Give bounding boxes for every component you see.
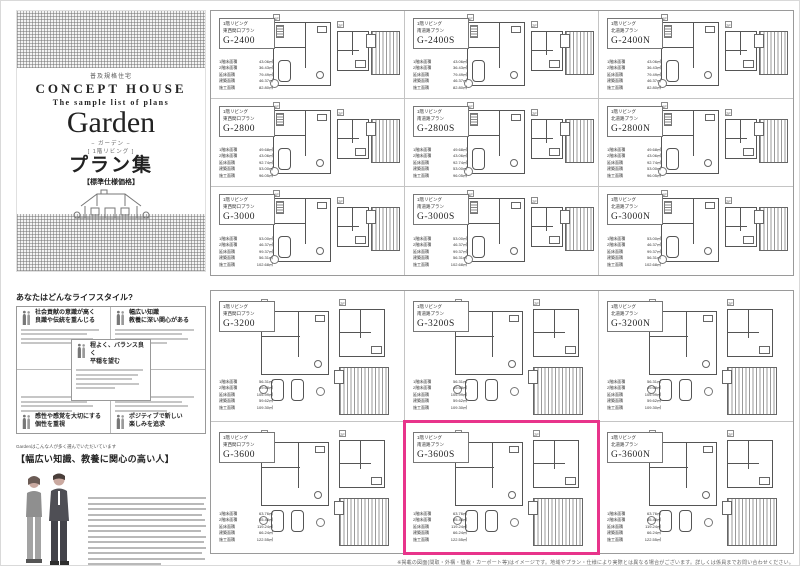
- orientation-label: 東西間口プラン: [223, 116, 271, 123]
- couple-illustration: [16, 471, 80, 566]
- table-symbol: [316, 71, 324, 79]
- plan-label-box: 1階リビング東西間口プランG-3600: [219, 432, 275, 463]
- plan-spec-list: 1階床面積63.76㎡2階床面積55.48㎡延床面積119.24㎡建築面積66.…: [607, 511, 661, 543]
- car-symbol: [291, 510, 304, 532]
- floorplan-2f: [727, 440, 773, 488]
- car-symbol: [666, 60, 679, 82]
- roof-entry-symbol: [528, 501, 538, 515]
- floorplan-1f: [661, 22, 719, 86]
- plan-label-box: 1階リビング東西間口プランG-2800: [219, 106, 275, 137]
- floor-type-label: 1階リビング: [417, 109, 465, 116]
- car-symbol: [485, 510, 498, 532]
- plan-code: G-3600: [223, 450, 271, 460]
- quadrant-heading: 感性や感覚を大切にする個性を重視: [35, 414, 101, 430]
- floor-marker-2f: 2F: [533, 430, 540, 437]
- cover-text-block: 普及規格住宅 CONCEPT HOUSE The sample list of …: [17, 68, 205, 214]
- bed-symbol: [355, 236, 366, 244]
- table-symbol: [510, 71, 518, 79]
- people-icon: [21, 310, 32, 325]
- recommend-lead: Gardenはこんな人が多く選んでいただいています: [16, 444, 206, 450]
- tree-symbol: [316, 387, 325, 396]
- car-symbol: [679, 510, 692, 532]
- orientation-label: 北道路プラン: [611, 442, 659, 449]
- recommend-paragraph: [88, 471, 206, 566]
- bed-symbol: [759, 477, 770, 485]
- floorplan-1f: [467, 22, 525, 86]
- quadrant-heading: 社会貢献の意識が高く良識や伝統を重んじる: [35, 310, 95, 326]
- bed-symbol: [565, 346, 576, 354]
- orientation-label: 東西間口プラン: [223, 442, 271, 449]
- plan-spec-list: 1階床面積63.76㎡2階床面積55.48㎡延床面積119.24㎡建築面積66.…: [219, 511, 273, 543]
- roof-plan: [565, 119, 594, 163]
- table-symbol: [704, 159, 712, 167]
- catalog-title: プラン集: [17, 156, 205, 176]
- floorplan-1f: [661, 198, 719, 262]
- plan-catalog-area: 1階リビング東西間口プランG-24001階床面積43.06㎡2階床面積36.43…: [210, 10, 794, 566]
- floor-type-label: 1階リビング: [417, 304, 465, 311]
- floor-marker-2f: 2F: [531, 109, 538, 116]
- floorplan-1f: [467, 110, 525, 174]
- orientation-label: 北道路プラン: [611, 204, 659, 211]
- car-symbol: [485, 379, 498, 401]
- bed-symbol: [743, 60, 754, 68]
- car-symbol: [666, 148, 679, 170]
- plan-label-box: 1階リビング南道路プランG-3200S: [413, 301, 469, 332]
- cover-page: 普及規格住宅 CONCEPT HOUSE The sample list of …: [16, 10, 206, 272]
- car-symbol: [472, 148, 485, 170]
- car-symbol: [472, 236, 485, 258]
- plan-catalog-sheet: 普及規格住宅 CONCEPT HOUSE The sample list of …: [0, 0, 800, 566]
- center-heading: 程よく、バランス良く平穏を望む: [90, 343, 146, 366]
- floorplan-2f: [337, 119, 369, 159]
- floor-type-label: 1階リビング: [223, 21, 271, 28]
- floorplan-1f: [467, 198, 525, 262]
- furniture-symbol: [315, 446, 325, 453]
- car-symbol: [278, 60, 291, 82]
- floor-type-label: 1階リビング: [611, 21, 659, 28]
- plan-spec-list: 1階床面積53.00㎡2階床面積46.37㎡延床面積99.37㎡建築面積56.3…: [607, 236, 661, 268]
- plan-label-box: 1階リビング東西間口プランG-3200: [219, 301, 275, 332]
- floor-marker-2f: 2F: [337, 21, 344, 28]
- plan-code: G-3200: [223, 319, 271, 329]
- plan-spec-list: 1階床面積43.06㎡2階床面積36.43㎡延床面積79.49㎡建築面積46.3…: [413, 59, 467, 91]
- lifestyle-panel: あなたはどんなライフスタイル? 社会貢献の意識が高く良識や伝統を重んじる幅広い知…: [16, 292, 206, 434]
- plan-code: G-3600N: [611, 450, 659, 460]
- plan-code: G-3000S: [417, 212, 465, 222]
- floor-type-label: 1階リビング: [611, 435, 659, 442]
- people-icon: [115, 310, 126, 325]
- car-symbol: [278, 148, 291, 170]
- plan-cell-G-2800[interactable]: 1階リビング東西間口プランG-28001階床面積49.68㎡2階床面積43.06…: [211, 99, 405, 187]
- plan-code: G-3600S: [417, 450, 465, 460]
- tree-symbol: [704, 387, 713, 396]
- roof-plan: [371, 119, 400, 163]
- floor-type-label: 1階リビング: [223, 109, 271, 116]
- table-symbol: [510, 159, 518, 167]
- plan-code: G-2400N: [611, 36, 659, 46]
- roof-entry-symbol: [334, 370, 344, 384]
- roof-entry-symbol: [366, 34, 376, 48]
- floor-marker-2f: 2F: [339, 299, 346, 306]
- orientation-label: 南道路プラン: [417, 311, 465, 318]
- plan-grid-top: 1階リビング東西間口プランG-24001階床面積43.06㎡2階床面積36.43…: [210, 10, 794, 276]
- plan-spec-list: 1階床面積56.31㎡2階床面積49.68㎡延床面積105.99㎡建築面積59.…: [607, 379, 661, 411]
- tree-symbol: [510, 518, 519, 527]
- plan-code: G-3200N: [611, 319, 659, 329]
- furniture-symbol: [705, 114, 715, 121]
- plan-code: G-2400: [223, 36, 271, 46]
- stairs-symbol: [664, 25, 672, 38]
- table-symbol: [314, 360, 322, 368]
- recommend-panel: Gardenはこんな人が多く選んでいただいています 【幅広い知識、教養に関心の高…: [16, 444, 206, 566]
- plan-code: G-2800: [223, 124, 271, 134]
- roof-entry-symbol: [722, 501, 732, 515]
- plan-code: G-3000: [223, 212, 271, 222]
- roof-plan: [759, 31, 788, 75]
- bed-symbol: [371, 477, 382, 485]
- bed-symbol: [355, 148, 366, 156]
- furniture-symbol: [703, 315, 713, 322]
- floor-marker-2f: 2F: [725, 21, 732, 28]
- brand-title: CONCEPT HOUSE: [17, 81, 205, 97]
- floor-marker-2f: 2F: [725, 197, 732, 204]
- plan-label-box: 1階リビング東西間口プランG-3000: [219, 194, 275, 225]
- orientation-label: 東西間口プラン: [223, 28, 271, 35]
- roof-entry-symbol: [754, 122, 764, 136]
- bed-symbol: [743, 148, 754, 156]
- orientation-label: 南道路プラン: [417, 204, 465, 211]
- roof-entry-symbol: [366, 122, 376, 136]
- plan-cell-G-3200[interactable]: 1階リビング東西間口プランG-32001階床面積56.31㎡2階床面積49.68…: [211, 291, 405, 422]
- plan-cell-G-3600S[interactable]: 1階リビング南道路プランG-3600S1階床面積63.76㎡2階床面積55.48…: [405, 422, 599, 553]
- roof-plan: [759, 207, 788, 251]
- roof-plan: [727, 367, 777, 415]
- plan-cell-G-3600N[interactable]: 1階リビング北道路プランG-3600N1階床面積63.76㎡2階床面積55.48…: [599, 422, 793, 553]
- furniture-symbol: [315, 315, 325, 322]
- plan-label-box: 1階リビング南道路プランG-3000S: [413, 194, 469, 225]
- stairs-symbol: [276, 113, 284, 126]
- plan-label-box: 1階リビング東西間口プランG-2400: [219, 18, 275, 49]
- roof-entry-symbol: [722, 370, 732, 384]
- car-symbol: [278, 236, 291, 258]
- stairs-symbol: [276, 201, 284, 214]
- series-note: [ 1階リビング ]: [17, 147, 205, 155]
- people-icon: [21, 414, 32, 429]
- roof-plan: [759, 119, 788, 163]
- roof-plan: [339, 367, 389, 415]
- roof-entry-symbol: [754, 34, 764, 48]
- bed-symbol: [743, 236, 754, 244]
- stairs-symbol: [470, 113, 478, 126]
- floorplan-2f: [339, 440, 385, 488]
- furniture-symbol: [705, 202, 715, 209]
- disclaimer-text: ※掲載の図面(間取・外構・植栽・カーポート等)はイメージです。地域やプラン・仕様…: [210, 559, 794, 566]
- people-icon: [115, 414, 126, 429]
- plan-spec-list: 1階床面積56.31㎡2階床面積49.68㎡延床面積105.99㎡建築面積59.…: [219, 379, 273, 411]
- stairs-symbol: [664, 113, 672, 126]
- roof-plan: [565, 207, 594, 251]
- floorplan-2f: [531, 207, 563, 247]
- plan-code: G-2800S: [417, 124, 465, 134]
- plan-cell-G-3200S[interactable]: 1階リビング南道路プランG-3200S1階床面積56.31㎡2階床面積49.68…: [405, 291, 599, 422]
- table-symbol: [508, 491, 516, 499]
- floorplan-1f: [273, 110, 331, 174]
- plan-label-box: 1階リビング北道路プランG-3200N: [607, 301, 663, 332]
- plan-spec-list: 1階床面積63.76㎡2階床面積55.48㎡延床面積119.24㎡建築面積66.…: [413, 511, 467, 543]
- plan-code: G-2400S: [417, 36, 465, 46]
- tree-symbol: [316, 518, 325, 527]
- tree-symbol: [510, 387, 519, 396]
- lifestyle-title: あなたはどんなライフスタイル?: [16, 292, 206, 303]
- floor-type-label: 1階リビング: [223, 435, 271, 442]
- plan-spec-list: 1階床面積49.68㎡2階床面積43.06㎡延床面積92.74㎡建築面積53.0…: [413, 147, 467, 179]
- floorplan-2f: [531, 119, 563, 159]
- roof-plan: [727, 498, 777, 546]
- furniture-symbol: [511, 26, 521, 33]
- series-name: Garden: [17, 108, 205, 138]
- bed-symbol: [355, 60, 366, 68]
- roof-entry-symbol: [366, 210, 376, 224]
- roof-entry-symbol: [560, 122, 570, 136]
- orientation-label: 北道路プラン: [611, 311, 659, 318]
- floor-marker-2f: 2F: [533, 299, 540, 306]
- center-bullets: [76, 369, 146, 389]
- table-symbol: [316, 159, 324, 167]
- table-symbol: [508, 360, 516, 368]
- plan-label-box: 1階リビング南道路プランG-2400S: [413, 18, 469, 49]
- orientation-label: 東西間口プラン: [223, 204, 271, 211]
- furniture-symbol: [317, 202, 327, 209]
- plan-spec-list: 1階床面積53.00㎡2階床面積46.37㎡延床面積99.37㎡建築面積56.3…: [413, 236, 467, 268]
- plan-label-box: 1階リビング北道路プランG-3000N: [607, 194, 663, 225]
- plan-spec-list: 1階床面積53.00㎡2階床面積46.37㎡延床面積99.37㎡建築面積56.3…: [219, 236, 273, 268]
- orientation-label: 東西間口プラン: [223, 311, 271, 318]
- plan-code: G-2800N: [611, 124, 659, 134]
- roof-plan: [533, 498, 583, 546]
- table-symbol: [510, 247, 518, 255]
- left-column: 普及規格住宅 CONCEPT HOUSE The sample list of …: [16, 10, 206, 566]
- plan-spec-list: 1階床面積56.31㎡2階床面積49.68㎡延床面積105.99㎡建築面積59.…: [413, 379, 467, 411]
- orientation-label: 南道路プラン: [417, 28, 465, 35]
- plan-cell-G-3200N[interactable]: 1階リビング北道路プランG-3200N1階床面積56.31㎡2階床面積49.68…: [599, 291, 793, 422]
- plan-cell-G-2800N[interactable]: 1階リビング北道路プランG-2800N1階床面積49.68㎡2階床面積43.06…: [599, 99, 793, 187]
- people-icon: [76, 343, 87, 358]
- plan-label-box: 1階リビング南道路プランG-3600S: [413, 432, 469, 463]
- checker-pattern-bottom: [17, 214, 205, 271]
- bed-symbol: [549, 148, 560, 156]
- roof-entry-symbol: [754, 210, 764, 224]
- plan-label-box: 1階リビング北道路プランG-2400N: [607, 18, 663, 49]
- floor-type-label: 1階リビング: [223, 304, 271, 311]
- table-symbol: [704, 247, 712, 255]
- plan-cell-G-2400[interactable]: 1階リビング東西間口プランG-24001階床面積43.06㎡2階床面積36.43…: [211, 11, 405, 99]
- plan-cell-G-3000[interactable]: 1階リビング東西間口プランG-30001階床面積53.00㎡2階床面積46.37…: [211, 187, 405, 275]
- orientation-label: 北道路プラン: [611, 28, 659, 35]
- floor-marker-2f: 2F: [727, 430, 734, 437]
- floorplan-2f: [725, 207, 757, 247]
- floor-type-label: 1階リビング: [417, 21, 465, 28]
- furniture-symbol: [511, 202, 521, 209]
- orientation-label: 南道路プラン: [417, 116, 465, 123]
- floorplan-2f: [725, 119, 757, 159]
- furniture-symbol: [511, 114, 521, 121]
- plan-spec-list: 1階床面積43.06㎡2階床面積36.43㎡延床面積79.49㎡建築面積46.3…: [607, 59, 661, 91]
- plan-label-box: 1階リビング北道路プランG-2800N: [607, 106, 663, 137]
- plan-grid-bottom: 1階リビング東西間口プランG-32001階床面積56.31㎡2階床面積49.68…: [210, 290, 794, 554]
- floor-marker-2f: 2F: [337, 197, 344, 204]
- orientation-label: 南道路プラン: [417, 442, 465, 449]
- floor-type-label: 1階リビング: [611, 197, 659, 204]
- table-symbol: [704, 71, 712, 79]
- furniture-symbol: [509, 446, 519, 453]
- floorplan-1f: [273, 22, 331, 86]
- plan-code: G-3000N: [611, 212, 659, 222]
- bed-symbol: [759, 346, 770, 354]
- table-symbol: [702, 491, 710, 499]
- floor-type-label: 1階リビング: [611, 109, 659, 116]
- floor-type-label: 1階リビング: [223, 197, 271, 204]
- quadrant-heading: 幅広い知識教養に深い関心がある: [129, 310, 189, 326]
- roof-plan: [371, 207, 400, 251]
- plan-spec-list: 1階床面積49.68㎡2階床面積43.06㎡延床面積92.74㎡建築面積53.0…: [607, 147, 661, 179]
- floor-marker-2f: 2F: [725, 109, 732, 116]
- cover-tagline: 普及規格住宅: [17, 71, 205, 80]
- stairs-symbol: [470, 201, 478, 214]
- roof-entry-symbol: [560, 34, 570, 48]
- roof-plan: [339, 498, 389, 546]
- recommend-headline: 【幅広い知識、教養に関心の高い人】: [16, 452, 206, 465]
- table-symbol: [316, 247, 324, 255]
- floor-type-label: 1階リビング: [417, 435, 465, 442]
- stairs-symbol: [664, 201, 672, 214]
- plan-cell-G-3600[interactable]: 1階リビング東西間口プランG-36001階床面積63.76㎡2階床面積55.48…: [211, 422, 405, 553]
- series-kana: − ガーデン −: [17, 139, 205, 147]
- bed-symbol: [549, 60, 560, 68]
- stairs-symbol: [276, 25, 284, 38]
- furniture-symbol: [705, 26, 715, 33]
- floor-type-label: 1階リビング: [611, 304, 659, 311]
- orientation-label: 北道路プラン: [611, 116, 659, 123]
- floor-marker-2f: 2F: [531, 197, 538, 204]
- car-symbol: [291, 379, 304, 401]
- floorplan-2f: [533, 309, 579, 357]
- plan-cell-G-2400S[interactable]: 1階リビング南道路プランG-2400S1階床面積43.06㎡2階床面積36.43…: [405, 11, 599, 99]
- furniture-symbol: [317, 26, 327, 33]
- plan-cell-G-2400N[interactable]: 1階リビング北道路プランG-2400N1階床面積43.06㎡2階床面積36.43…: [599, 11, 793, 99]
- floorplan-2f: [531, 31, 563, 71]
- table-symbol: [314, 491, 322, 499]
- spec-note: 【標準仕様価格】: [17, 177, 205, 187]
- floorplan-1f: [661, 110, 719, 174]
- checker-pattern-top: [17, 11, 205, 68]
- car-symbol: [679, 379, 692, 401]
- floor-marker-2f: 2F: [727, 299, 734, 306]
- floorplan-2f: [339, 309, 385, 357]
- plan-cell-G-2800S[interactable]: 1階リビング南道路プランG-2800S1階床面積49.68㎡2階床面積43.06…: [405, 99, 599, 187]
- tree-symbol: [704, 518, 713, 527]
- plan-label-box: 1階リビング南道路プランG-2800S: [413, 106, 469, 137]
- floor-marker-2f: 2F: [531, 21, 538, 28]
- floorplan-1f: [273, 198, 331, 262]
- floorplan-2f: [337, 207, 369, 247]
- plan-label-box: 1階リビング北道路プランG-3600N: [607, 432, 663, 463]
- quadrant-heading: ポジティブで新しい楽しみを追求: [129, 414, 183, 430]
- roof-plan: [565, 31, 594, 75]
- furniture-symbol: [317, 114, 327, 121]
- floor-type-label: 1階リビング: [417, 197, 465, 204]
- bed-symbol: [565, 477, 576, 485]
- roof-entry-symbol: [560, 210, 570, 224]
- floor-marker-2f: 2F: [339, 430, 346, 437]
- floorplan-2f: [727, 309, 773, 357]
- bed-symbol: [371, 346, 382, 354]
- roof-entry-symbol: [334, 501, 344, 515]
- plan-spec-list: 1階床面積43.06㎡2階床面積36.43㎡延床面積79.49㎡建築面積46.3…: [219, 59, 273, 91]
- bed-symbol: [549, 236, 560, 244]
- furniture-symbol: [509, 315, 519, 322]
- roof-entry-symbol: [528, 370, 538, 384]
- floorplan-2f: [725, 31, 757, 71]
- lifestyle-center-box: 程よく、バランス良く平穏を望む: [71, 339, 151, 401]
- plan-cell-G-3000N[interactable]: 1階リビング北道路プランG-3000N1階床面積53.00㎡2階床面積46.37…: [599, 187, 793, 275]
- car-symbol: [472, 60, 485, 82]
- plan-code: G-3200S: [417, 319, 465, 329]
- floorplan-2f: [337, 31, 369, 71]
- lifestyle-quadrant-grid: 社会貢献の意識が高く良識や伝統を重んじる幅広い知識教養に深い関心がある感性や感覚…: [16, 306, 206, 434]
- floorplan-2f: [533, 440, 579, 488]
- stairs-symbol: [470, 25, 478, 38]
- plan-cell-G-3000S[interactable]: 1階リビング南道路プランG-3000S1階床面積53.00㎡2階床面積46.37…: [405, 187, 599, 275]
- roof-plan: [533, 367, 583, 415]
- furniture-symbol: [703, 446, 713, 453]
- floor-marker-2f: 2F: [337, 109, 344, 116]
- table-symbol: [702, 360, 710, 368]
- roof-plan: [371, 31, 400, 75]
- car-symbol: [666, 236, 679, 258]
- plan-spec-list: 1階床面積49.68㎡2階床面積43.06㎡延床面積92.74㎡建築面積53.0…: [219, 147, 273, 179]
